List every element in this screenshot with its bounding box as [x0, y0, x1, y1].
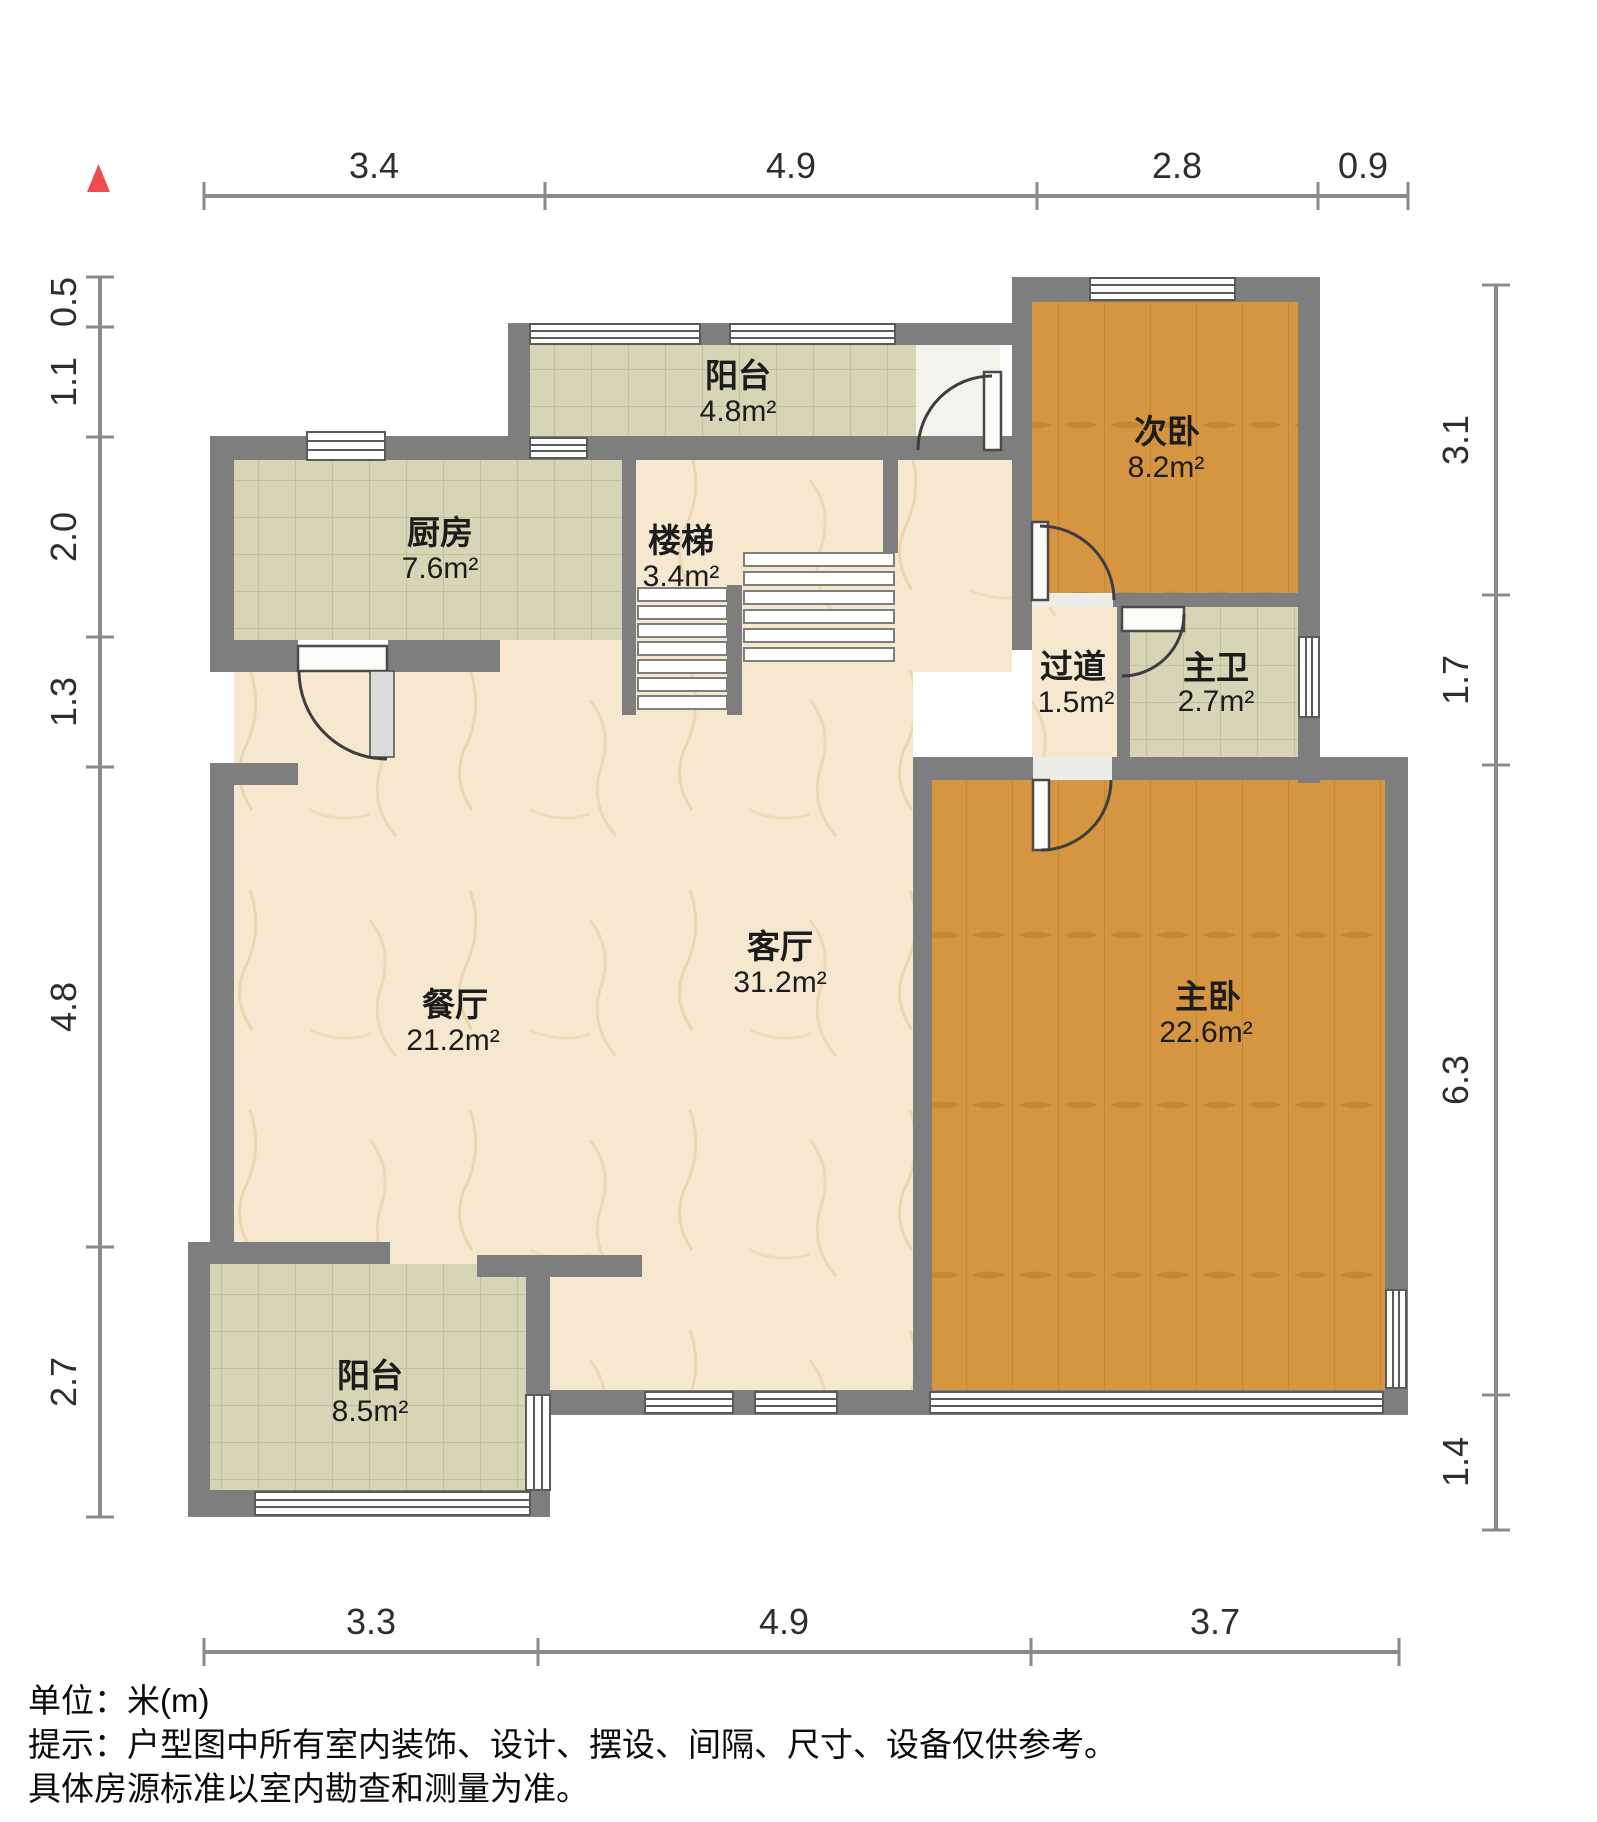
window-balcony-top-2	[730, 324, 895, 344]
hall-floor	[898, 452, 1012, 672]
dim-left-1: 0.5	[43, 277, 84, 327]
dim-top-1: 3.4	[349, 145, 399, 186]
dim-right-4: 1.4	[1435, 1437, 1476, 1487]
wall-living-balcony-divider	[526, 1255, 550, 1395]
room-area-master-bedroom: 22.6m²	[1159, 1016, 1252, 1049]
note-unit: 单位：米(m)	[28, 1682, 209, 1719]
dim-top-3: 2.8	[1152, 145, 1202, 186]
room-name-master-bath: 主卫	[1183, 649, 1249, 686]
wall-master-top-left	[913, 757, 1033, 780]
room-name-balcony-top: 阳台	[705, 357, 771, 394]
room-area-balcony-bottom: 8.5m²	[332, 1395, 409, 1428]
dim-bottom-2: 4.9	[759, 1601, 809, 1642]
dim-left-6: 2.7	[43, 1357, 84, 1407]
room-area-stairs: 3.4m²	[643, 560, 720, 593]
dim-right-2: 1.7	[1435, 655, 1476, 705]
wall-bedroom2-bottom	[1113, 593, 1320, 607]
room-name-master-bedroom: 主卧	[1175, 978, 1241, 1015]
window-kitchen-top	[307, 432, 385, 460]
window-master-bottom	[930, 1392, 1383, 1413]
wall-dining-left	[210, 763, 234, 1255]
wall-entry-left	[210, 640, 298, 672]
window-living-bottom-2	[755, 1392, 837, 1413]
window-master-right	[1386, 1290, 1406, 1388]
window-balcony-bottom-right	[526, 1395, 550, 1490]
dimension-left: 0.5 1.1 2.0 1.3 4.8 2.7	[43, 277, 114, 1517]
wall-master-left	[913, 757, 932, 1415]
floorplan-page: 阳台 4.8m² 次卧 8.2m² 厨房 7.6m² 楼梯 3.4m² 过道 1…	[0, 0, 1597, 1822]
wall-stairs-right	[883, 440, 898, 553]
wall-balcony-bottom-left	[188, 1242, 210, 1517]
window-living-bottom-1	[645, 1392, 733, 1413]
dim-left-2: 1.1	[43, 357, 84, 407]
window-bedroom2-top	[1090, 278, 1235, 300]
window-balcony-top-1	[530, 324, 700, 344]
hallway-floor	[1032, 607, 1117, 763]
wall-kitchen-left	[210, 436, 234, 672]
room-name-living: 客厅	[747, 928, 813, 965]
floors	[210, 302, 1385, 1492]
dimension-right: 3.1 1.7 6.3 1.4	[1435, 285, 1510, 1530]
dim-right-1: 3.1	[1435, 415, 1476, 465]
room-name-kitchen: 厨房	[407, 514, 473, 551]
room-area-balcony-top: 4.8m²	[700, 395, 777, 428]
wall-master-top-right	[1112, 757, 1408, 780]
room-area-living: 31.2m²	[733, 966, 826, 999]
dim-top-4: 0.9	[1338, 145, 1388, 186]
window-kitchen-balcony-pass	[530, 438, 587, 458]
window-master-bath-right	[1299, 637, 1319, 717]
room-name-balcony-bottom: 阳台	[337, 1357, 403, 1394]
wall-balcony-top-left	[508, 323, 530, 440]
dim-bottom-3: 3.7	[1190, 1601, 1240, 1642]
footer-notes: 单位：米(m) 提示：户型图中所有室内装饰、设计、摆设、间隔、尺寸、设备仅供参考…	[28, 1682, 1117, 1807]
dim-left-4: 1.3	[43, 677, 84, 727]
wall-entry-right	[388, 640, 500, 672]
dimension-bottom: 3.3 4.9 3.7	[204, 1601, 1399, 1666]
room-name-hallway: 过道	[1040, 648, 1106, 685]
room-area-kitchen: 7.6m²	[402, 552, 479, 585]
room-area-hallway: 1.5m²	[1038, 686, 1115, 719]
room-name-dining: 餐厅	[422, 986, 488, 1023]
room-name-secondary-bedroom: 次卧	[1134, 413, 1200, 450]
room-area-master-bath: 2.7m²	[1178, 685, 1255, 718]
dim-bottom-1: 3.3	[346, 1601, 396, 1642]
dim-left-3: 2.0	[43, 512, 84, 562]
window-balcony-bottom	[255, 1492, 530, 1515]
dim-right-3: 6.3	[1435, 1055, 1476, 1105]
note-tip1: 提示：户型图中所有室内装饰、设计、摆设、间隔、尺寸、设备仅供参考。	[28, 1726, 1117, 1763]
room-area-dining: 21.2m²	[406, 1024, 499, 1057]
dimension-top: 3.4 4.9 2.8 0.9	[204, 145, 1408, 210]
wall-living-stub	[477, 1255, 642, 1277]
dim-top-2: 4.9	[766, 145, 816, 186]
note-tip2: 具体房源标准以室内勘查和测量为准。	[28, 1770, 589, 1807]
floorplan-canvas: 阳台 4.8m² 次卧 8.2m² 厨房 7.6m² 楼梯 3.4m² 过道 1…	[0, 0, 1597, 1822]
dim-left-5: 4.8	[43, 982, 84, 1032]
room-area-secondary-bedroom: 8.2m²	[1128, 451, 1205, 484]
wall-stairs-left	[622, 440, 636, 715]
wall-bedroom2-left	[1012, 277, 1032, 650]
wall-balcony-top-stub	[188, 1242, 390, 1264]
stairs-mid-rail	[727, 585, 742, 715]
north-indicator-icon	[87, 164, 110, 192]
master-bedroom-floor	[932, 780, 1385, 1390]
room-name-stairs: 楼梯	[648, 522, 714, 559]
